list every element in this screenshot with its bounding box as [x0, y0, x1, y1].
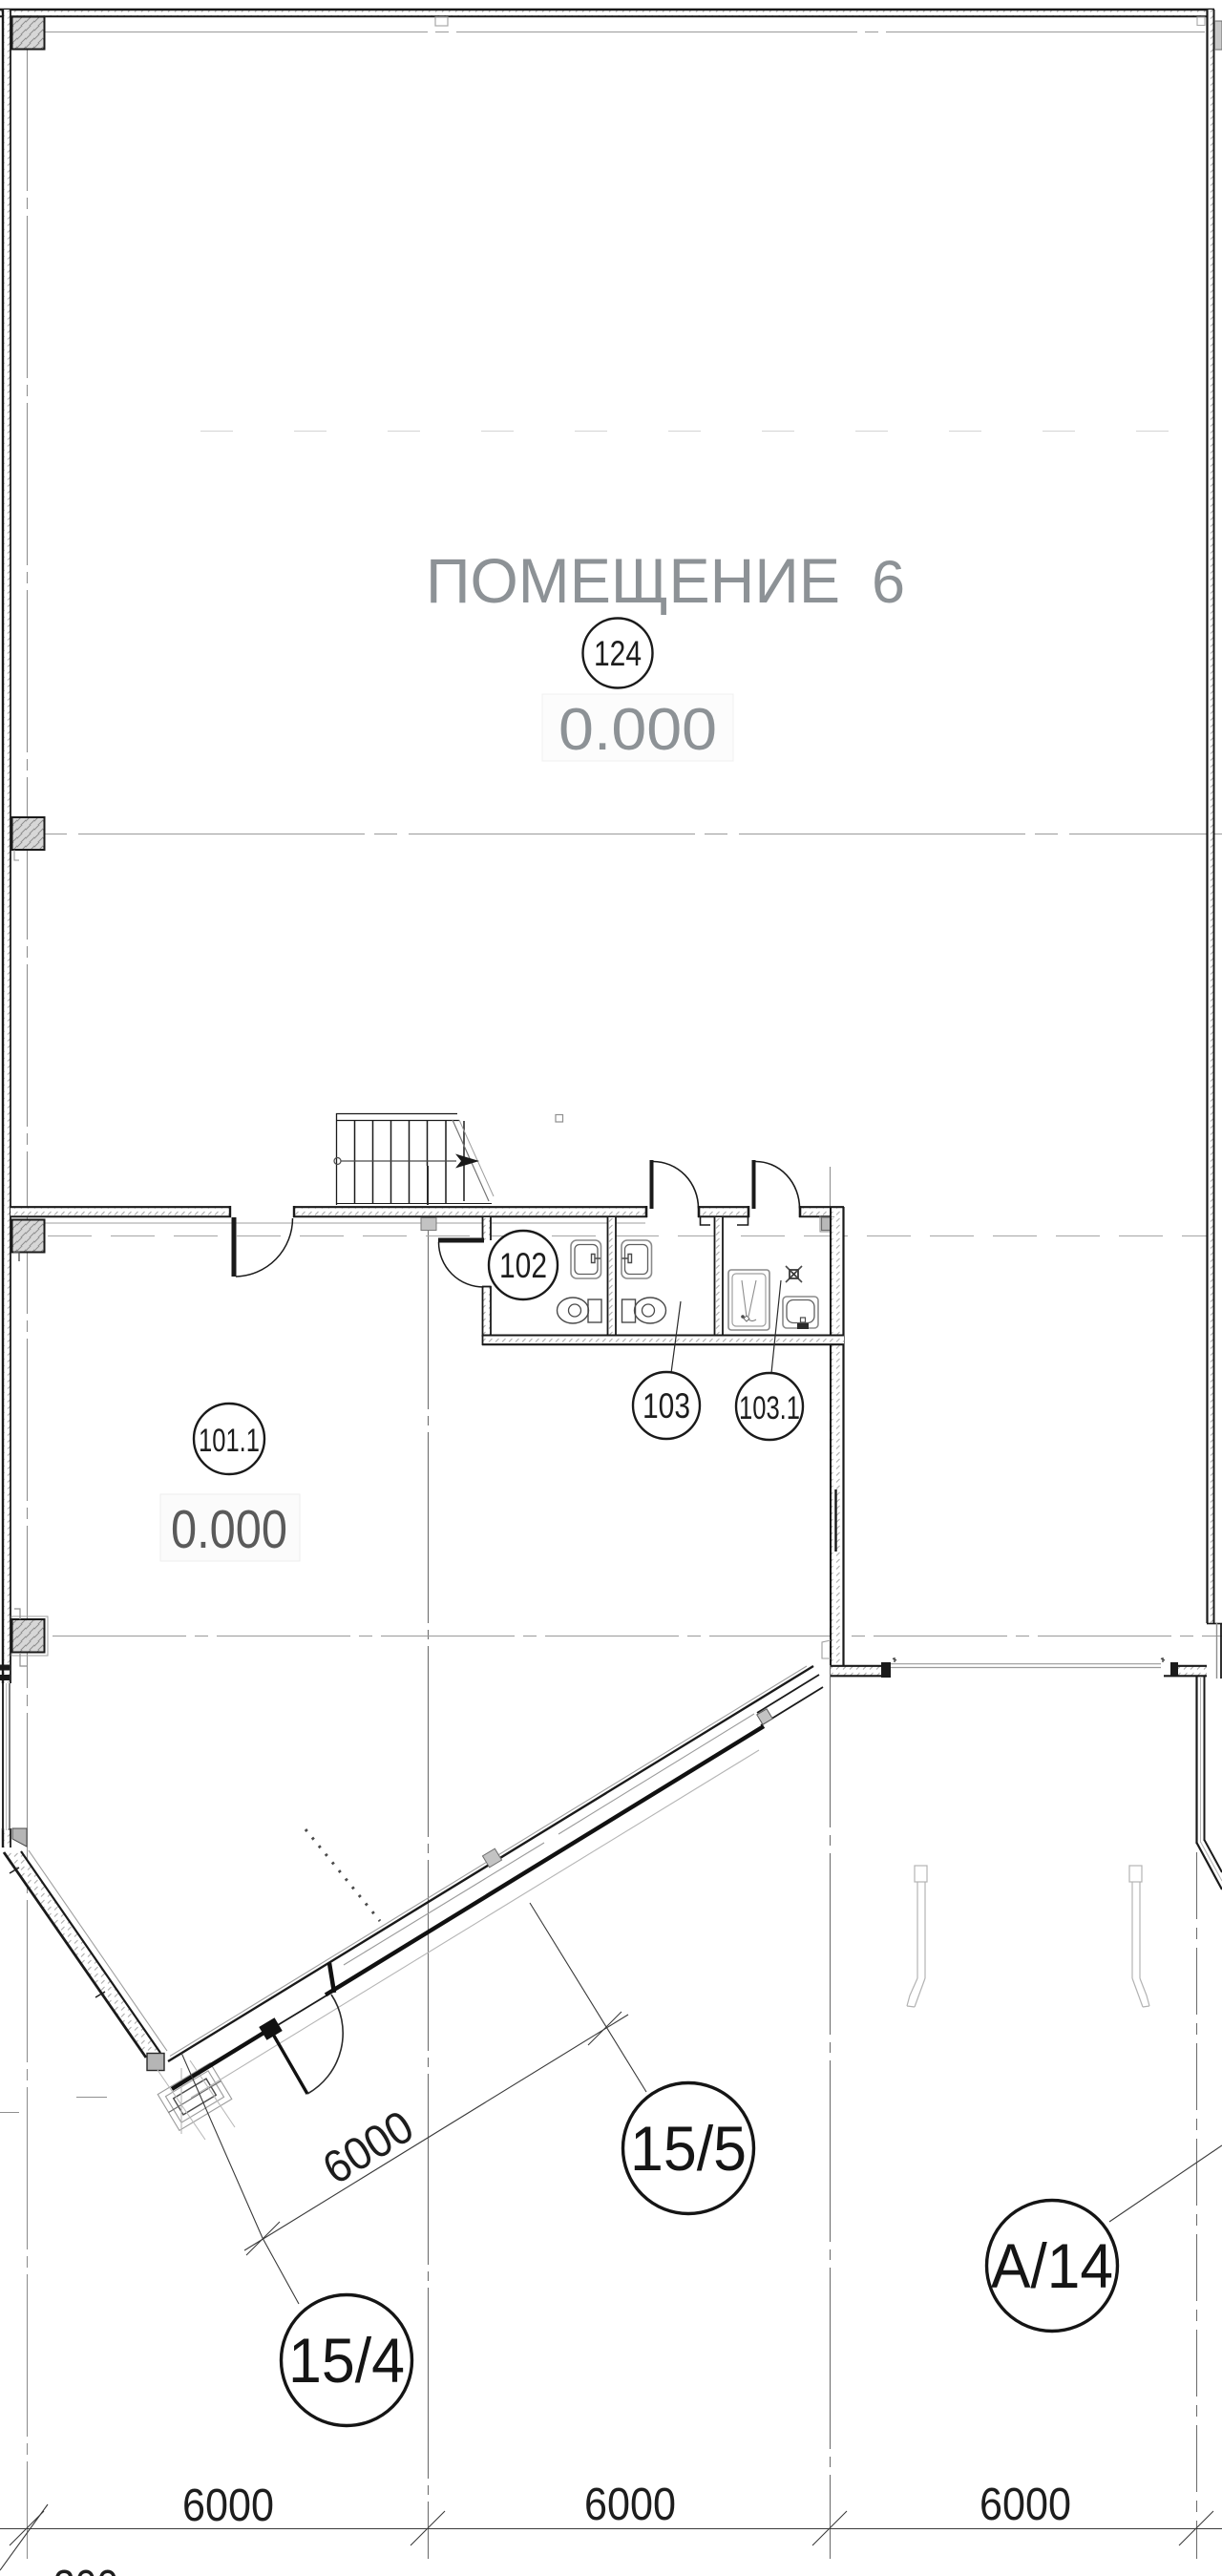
svg-text:15/4: 15/4	[288, 2325, 405, 2396]
svg-text:6000: 6000	[182, 2481, 274, 2531]
svg-text:6000: 6000	[980, 2480, 1071, 2530]
svg-text:101.1: 101.1	[199, 1423, 260, 1459]
svg-text:ПОМЕЩЕНИЕ: ПОМЕЩЕНИЕ	[426, 545, 840, 616]
svg-text:103: 103	[643, 1386, 690, 1425]
svg-text:102: 102	[499, 1246, 547, 1285]
svg-text:124: 124	[594, 634, 642, 673]
svg-text:6000: 6000	[584, 2480, 676, 2530]
svg-text:А/14: А/14	[991, 2230, 1113, 2301]
svg-text:6: 6	[872, 549, 905, 616]
svg-text:103.1: 103.1	[739, 1390, 800, 1426]
svg-text:300: 300	[53, 2562, 118, 2576]
svg-text:15/5: 15/5	[630, 2113, 747, 2184]
svg-text:0.000: 0.000	[171, 1499, 287, 1560]
svg-text:0.000: 0.000	[558, 697, 717, 763]
